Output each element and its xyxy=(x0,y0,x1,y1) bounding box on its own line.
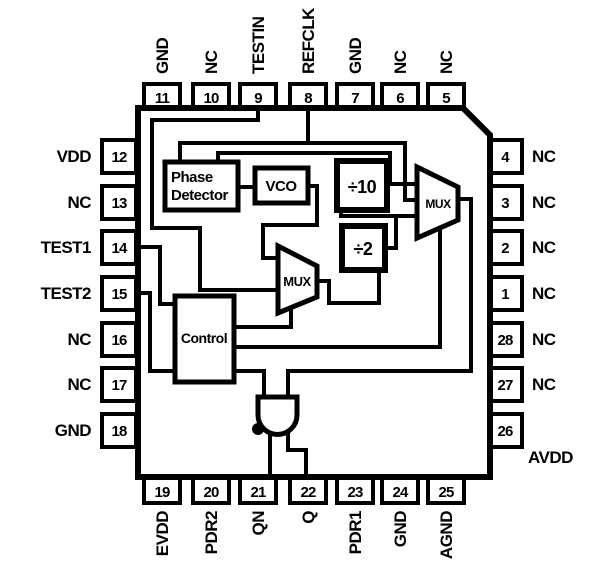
pin-label-nc-16: NC xyxy=(67,330,91,349)
pin-number: 26 xyxy=(497,423,513,440)
diagram-canvas: Phase Detector VCO ÷10 ÷2 MUX MUX Contro… xyxy=(0,0,602,565)
pin-number: 11 xyxy=(155,90,170,107)
pin-number: 17 xyxy=(111,377,127,394)
pin-number: 12 xyxy=(111,149,127,166)
pin-label-nc-17: NC xyxy=(67,375,91,394)
pin-label-gnd-18: GND xyxy=(55,421,92,440)
pin-number: 23 xyxy=(347,484,363,501)
inversion-bubble-icon xyxy=(252,423,264,435)
pin-number: 18 xyxy=(111,423,127,440)
vco-label: VCO xyxy=(265,178,297,195)
pin-number: 21 xyxy=(250,484,266,501)
pin-number: 5 xyxy=(442,90,450,107)
pin-number: 15 xyxy=(111,286,127,303)
pin-label-avdd: AVDD xyxy=(528,448,573,467)
pin-label-pdr2: PDR2 xyxy=(202,511,221,554)
pin-label-testin: TESTIN xyxy=(249,16,268,74)
pin-number: 28 xyxy=(497,332,513,349)
pin-label-gnd-11: GND xyxy=(153,38,172,75)
pin-label-nc-2: NC xyxy=(532,238,556,257)
top-pin-labels: GND NC TESTIN REFCLK GND NC NC xyxy=(153,7,456,74)
pin-number: 3 xyxy=(501,195,509,212)
control-label: Control xyxy=(181,330,227,346)
pin-label-agnd: AGND xyxy=(437,511,456,559)
pin-label-nc-13: NC xyxy=(67,193,91,212)
pin-number: 16 xyxy=(111,332,127,349)
pin-label-qn: QN xyxy=(249,511,268,536)
pin-number: 22 xyxy=(300,484,316,501)
phase-detector-label-line2: Detector xyxy=(171,187,229,204)
pin-label-nc-6: NC xyxy=(391,50,410,74)
pin-number: 25 xyxy=(438,484,454,501)
pin-label-evdd: EVDD xyxy=(153,511,172,556)
pin-number: 14 xyxy=(111,240,128,257)
pin-label-nc-27: NC xyxy=(532,375,556,394)
right-pin-labels: NC NC NC NC NC NC AVDD xyxy=(528,147,573,467)
pin-number: 19 xyxy=(154,484,170,501)
pin-label-nc-28: NC xyxy=(532,330,556,349)
pin-number: 1 xyxy=(501,286,509,303)
pin-label-nc-3: NC xyxy=(532,193,556,212)
pin-number: 8 xyxy=(304,90,312,107)
mux-right-label: MUX xyxy=(425,197,451,211)
div2-label: ÷2 xyxy=(354,239,373,259)
pin-label-q: Q xyxy=(299,511,318,524)
pin-label-nc-10: NC xyxy=(202,50,221,74)
pin-number: 6 xyxy=(396,90,404,107)
pin-label-gnd-24: GND xyxy=(391,511,410,548)
pin-number: 24 xyxy=(392,484,409,501)
pin-label-test1: TEST1 xyxy=(41,238,91,257)
pin-label-nc-1: NC xyxy=(532,284,556,303)
pin-number: 2 xyxy=(501,240,509,257)
div10-label: ÷10 xyxy=(348,177,377,197)
pin-number: 9 xyxy=(254,90,262,107)
pin-label-nc-5: NC xyxy=(437,50,456,74)
mux-mid-label: MUX xyxy=(283,274,311,289)
pin-label-pdr1: PDR1 xyxy=(346,511,365,554)
pin-number: 7 xyxy=(351,90,359,107)
pin-label-vdd: VDD xyxy=(57,147,92,166)
pin-number: 20 xyxy=(203,484,219,501)
left-pin-labels: VDD NC TEST1 TEST2 NC NC GND xyxy=(41,147,92,440)
pin-label-refclk: REFCLK xyxy=(299,7,318,74)
pin-number: 13 xyxy=(111,195,127,212)
pin-number: 10 xyxy=(203,90,219,107)
pin-label-test2: TEST2 xyxy=(41,284,91,303)
pin-label-nc-4: NC xyxy=(532,147,556,166)
pin-label-gnd-7: GND xyxy=(346,38,365,75)
bottom-pin-labels: EVDD PDR2 QN Q PDR1 GND AGND xyxy=(153,511,456,559)
phase-detector-label-line1: Phase xyxy=(171,169,213,186)
pin-number: 27 xyxy=(497,377,513,394)
chip-pinout-diagram: Phase Detector VCO ÷10 ÷2 MUX MUX Contro… xyxy=(0,0,602,565)
